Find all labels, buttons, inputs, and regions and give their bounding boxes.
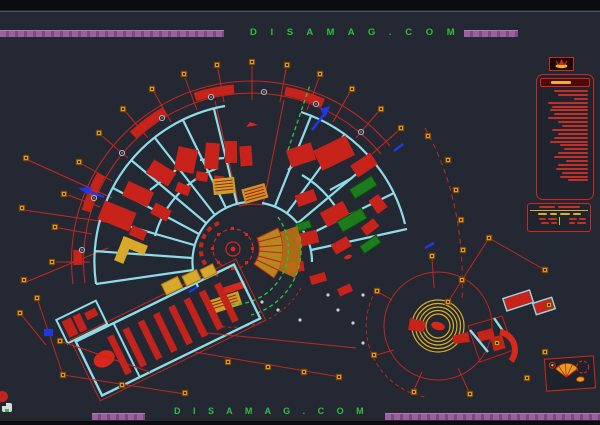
legend-row bbox=[554, 137, 588, 139]
purple-bar-top-right bbox=[464, 30, 518, 37]
bottom-black-bar bbox=[0, 421, 600, 425]
legend-row bbox=[556, 168, 588, 170]
cad-screenshot-root: D I S A M A G . C O M D I S A M A G . C … bbox=[0, 0, 600, 425]
purple-bar-bottom-right bbox=[385, 413, 600, 420]
table-body bbox=[530, 217, 588, 225]
legend-row bbox=[562, 172, 588, 174]
amphitheatre bbox=[366, 258, 492, 397]
legend-row bbox=[566, 160, 588, 162]
watermark-bottom: D I S A M A G . C O M bbox=[174, 406, 369, 416]
legend-row bbox=[564, 148, 588, 150]
top-black-bar bbox=[0, 0, 600, 10]
legend-row bbox=[560, 176, 588, 178]
legend-row bbox=[558, 133, 588, 135]
legend-row bbox=[574, 98, 588, 100]
table-left-column bbox=[530, 217, 559, 225]
ornament-box bbox=[544, 355, 596, 391]
point-dots bbox=[260, 293, 364, 344]
legend-row bbox=[562, 125, 588, 127]
right-fan-rooms bbox=[285, 135, 387, 296]
legend-logo-box bbox=[549, 57, 574, 71]
legend-title-text-glyph bbox=[551, 81, 571, 84]
legend-row bbox=[568, 179, 588, 181]
legend-panel bbox=[536, 74, 594, 200]
legend-row bbox=[552, 129, 588, 131]
table-divider bbox=[530, 210, 588, 211]
legend-row bbox=[554, 156, 588, 158]
legend-row bbox=[550, 109, 588, 111]
floorplan-canvas bbox=[0, 0, 600, 425]
legend-row bbox=[552, 106, 588, 108]
white-chip-glyph bbox=[2, 403, 12, 412]
legend-row bbox=[560, 144, 588, 146]
legend-row bbox=[548, 102, 588, 104]
table-header-row bbox=[530, 213, 588, 215]
legend-row bbox=[558, 121, 588, 123]
schedule-table bbox=[527, 203, 591, 232]
legend-row bbox=[558, 164, 588, 166]
legend-text-rows bbox=[539, 89, 591, 182]
tulip-emblem-icon bbox=[551, 59, 572, 69]
top-divider-line bbox=[0, 11, 600, 12]
legend-row bbox=[558, 152, 588, 154]
legend-row bbox=[558, 94, 588, 96]
legend-title-bar bbox=[540, 78, 590, 87]
table-title-row bbox=[530, 206, 588, 208]
legend-row bbox=[554, 113, 588, 115]
purple-bar-top-left bbox=[0, 30, 224, 37]
table-right-column bbox=[559, 217, 589, 225]
legend-row bbox=[554, 90, 588, 92]
legend-row bbox=[550, 141, 588, 143]
fan-ornament-icon bbox=[545, 357, 593, 389]
watermark-top: D I S A M A G . C O M bbox=[250, 27, 460, 38]
legend-row bbox=[548, 117, 588, 119]
purple-bar-bottom-left bbox=[92, 413, 145, 420]
